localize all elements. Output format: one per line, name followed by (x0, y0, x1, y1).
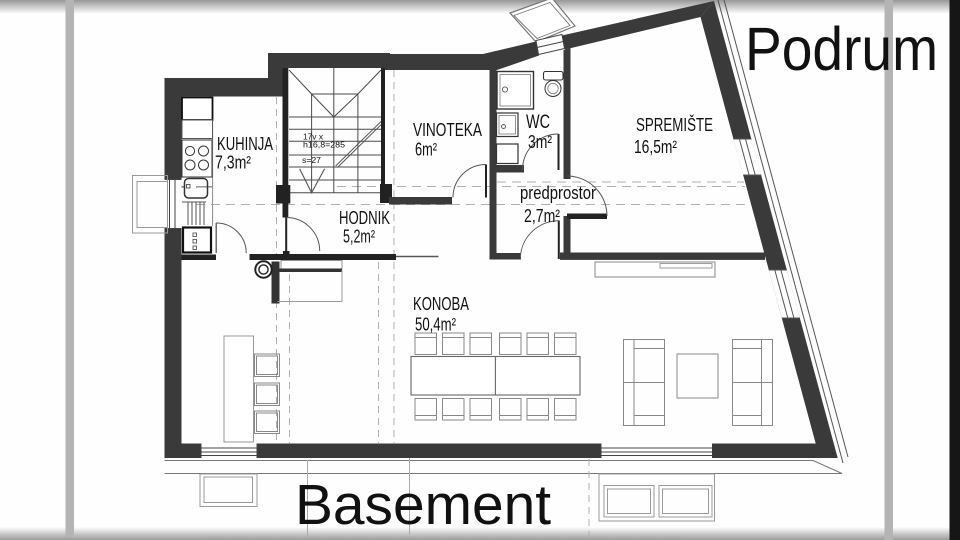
svg-text:7,3m²: 7,3m² (215, 153, 251, 173)
svg-text:HODNIK: HODNIK (339, 207, 390, 228)
svg-text:h16,8=285: h16,8=285 (303, 141, 346, 150)
svg-text:predprostor: predprostor (520, 182, 596, 203)
svg-text:s=27: s=27 (302, 156, 322, 165)
svg-text:KUHINJA: KUHINJA (217, 133, 273, 154)
svg-text:2,7m²: 2,7m² (524, 206, 560, 226)
svg-text:Podrum: Podrum (745, 15, 938, 83)
svg-text:KONOBA: KONOBA (413, 293, 469, 314)
svg-text:WC: WC (526, 112, 550, 133)
svg-text:16,5m²: 16,5m² (634, 137, 677, 157)
svg-text:3m²: 3m² (528, 132, 552, 152)
svg-text:SPREMIŠTE: SPREMIŠTE (636, 114, 713, 135)
svg-text:Basement: Basement (295, 473, 551, 536)
svg-text:50,4m²: 50,4m² (415, 315, 456, 335)
svg-text:VINOTEKA: VINOTEKA (413, 119, 482, 140)
svg-text:5,2m²: 5,2m² (343, 227, 375, 247)
svg-text:6m²: 6m² (415, 140, 437, 160)
